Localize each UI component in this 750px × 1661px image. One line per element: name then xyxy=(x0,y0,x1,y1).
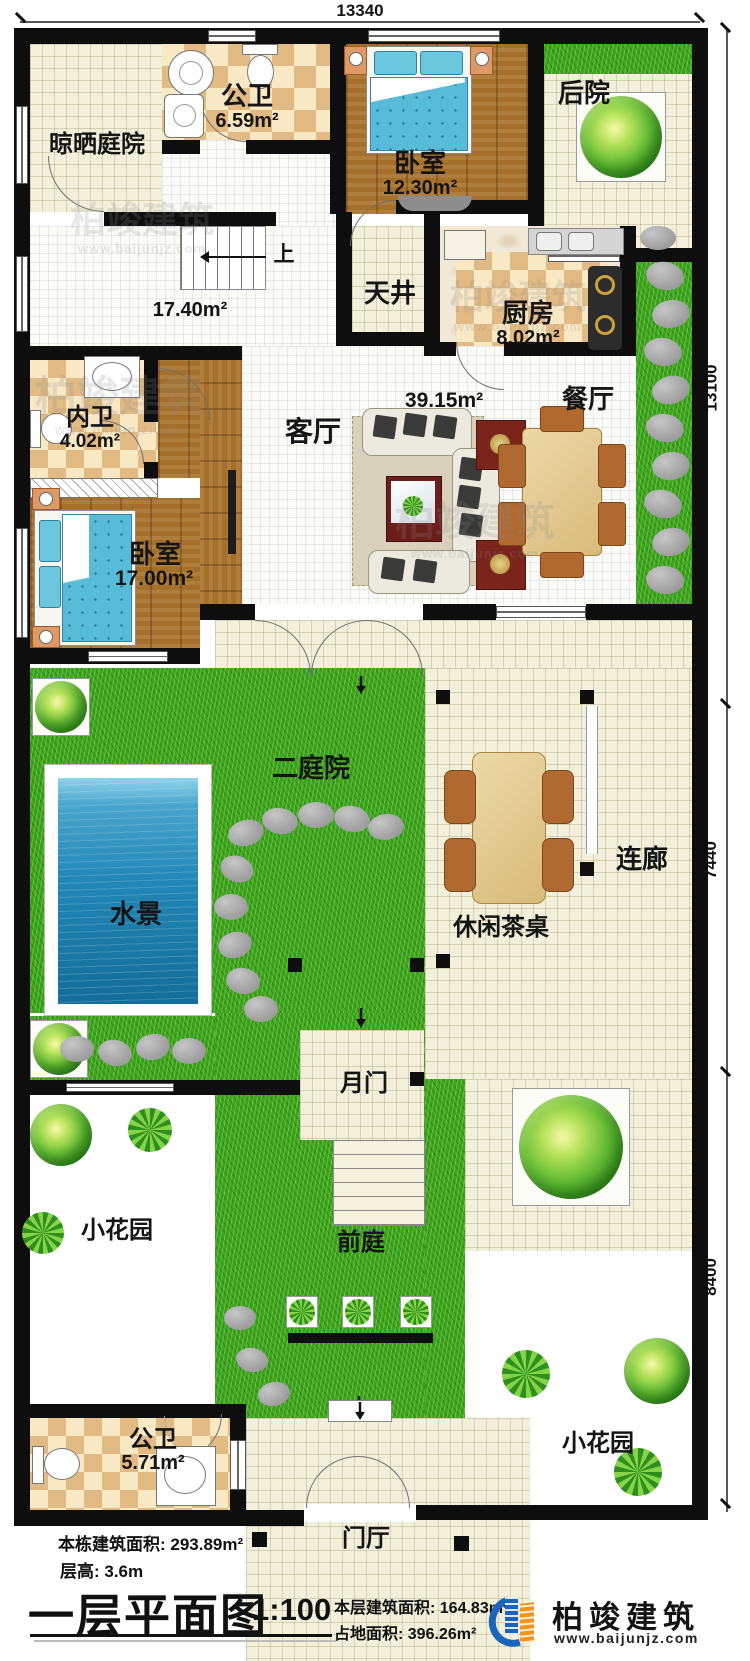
sofa-cushion xyxy=(433,415,458,440)
pillow xyxy=(374,51,417,75)
wall-stair-top xyxy=(104,212,276,226)
pillow xyxy=(420,51,463,75)
wall-left xyxy=(14,28,30,1526)
stone xyxy=(224,1306,256,1330)
tree-icon xyxy=(580,96,662,178)
room-label-neiwei: 内卫 xyxy=(66,406,114,430)
dining-chair xyxy=(498,502,526,546)
column xyxy=(436,690,450,704)
tea-table xyxy=(472,752,546,904)
room-area-gongwei-bottom: 5.71m² xyxy=(121,1453,184,1473)
wall-bath-top-a xyxy=(162,140,200,154)
wall-top xyxy=(14,28,708,44)
land-area-text: 占地面积: 396.26m² xyxy=(334,1620,476,1644)
wall-ensuite-right-a xyxy=(144,360,158,422)
sink-basin-icon xyxy=(179,61,203,85)
corridor-beam-line xyxy=(586,706,598,854)
room-label-lianlang: 连廊 xyxy=(616,846,668,872)
toilet-tank-icon xyxy=(32,1446,44,1484)
room-label-yuemen: 月门 xyxy=(340,1072,388,1096)
room-label-huayuan-right: 小花园 xyxy=(562,1432,634,1456)
washer-drum-icon xyxy=(173,104,196,127)
column xyxy=(288,958,302,972)
burner-icon xyxy=(595,275,615,295)
staircase xyxy=(180,226,266,290)
kitchen-counter xyxy=(444,230,486,260)
wall-tianjing-bottom xyxy=(336,332,440,346)
wall-tianjing-left xyxy=(336,212,352,342)
dimension-line-right xyxy=(726,30,728,1512)
wall-bottom-right xyxy=(415,1505,708,1520)
stair-arrow-line xyxy=(208,256,266,258)
room-label-shuijing: 水景 xyxy=(110,901,162,927)
dimension-line-top xyxy=(20,21,700,23)
plan-scale: 1:100 xyxy=(252,1592,331,1628)
burner-icon xyxy=(595,315,615,335)
column xyxy=(410,958,424,972)
front-courtyard-east xyxy=(425,1079,465,1420)
floor-height-text: 层高: 3.6m xyxy=(60,1557,143,1582)
room-label-liangshai: 晾晒庭院 xyxy=(49,133,145,157)
wall-bathroom-bottom-right-b xyxy=(230,1490,246,1510)
front-path-steps xyxy=(333,1140,425,1226)
pillow xyxy=(39,566,61,608)
window xyxy=(496,606,586,618)
wall-living-south-c xyxy=(586,604,692,620)
company-logo-icon xyxy=(487,1589,545,1653)
tv-icon xyxy=(228,470,236,554)
room-label-menting: 门厅 xyxy=(342,1527,390,1551)
room-label-canting: 餐厅 xyxy=(562,386,614,412)
wall-ensuite-right-b xyxy=(144,462,158,478)
tree-icon xyxy=(624,1338,690,1404)
room-area-woshi-top: 12.30m² xyxy=(383,178,458,198)
toilet-bowl-icon xyxy=(44,1448,80,1480)
shrub-icon xyxy=(128,1108,172,1152)
bed-sheet xyxy=(371,78,465,104)
room-label-chufang: 厨房 xyxy=(502,300,554,326)
column xyxy=(252,1532,267,1547)
wall-tvwall-top xyxy=(200,346,242,360)
stone xyxy=(298,802,334,828)
toilet-tank-icon xyxy=(30,410,41,448)
column xyxy=(580,690,594,704)
lamp-icon xyxy=(39,492,53,506)
wall-kitchen-stub xyxy=(440,342,456,356)
column xyxy=(580,862,594,876)
dining-table xyxy=(522,428,602,556)
tree-icon xyxy=(35,681,87,733)
logo-building-blue xyxy=(505,1597,518,1635)
bed-sheet xyxy=(63,515,89,639)
window xyxy=(16,106,28,184)
room-area-neiwei: 4.02m² xyxy=(60,432,120,451)
room-label-houyuan: 后院 xyxy=(558,80,610,106)
room-label-keting: 客厅 xyxy=(285,418,341,446)
window xyxy=(66,1083,174,1092)
sofa-cushion xyxy=(381,557,406,582)
wall-bath-top-b xyxy=(246,140,330,154)
lamp-icon xyxy=(475,52,489,66)
room-label-chazhuo: 休闲茶桌 xyxy=(453,916,549,940)
hedge-wall xyxy=(288,1333,433,1343)
room-label-woshi-left: 卧室 xyxy=(129,541,181,567)
pillow xyxy=(39,520,61,562)
tree-icon xyxy=(519,1095,623,1199)
wall-living-south-b xyxy=(423,604,496,620)
shrub-icon xyxy=(289,1299,315,1325)
window xyxy=(16,528,28,638)
room-area-keting: 39.15m² xyxy=(405,390,483,411)
toilet-tank-icon xyxy=(242,44,278,55)
window xyxy=(208,30,256,42)
sink-icon xyxy=(92,362,132,391)
column xyxy=(454,1536,469,1551)
sofa-cushion xyxy=(457,485,482,510)
shrub-icon xyxy=(502,1350,550,1398)
logo-building-orange xyxy=(520,1602,534,1643)
kitchen-sink-basin xyxy=(536,232,562,251)
stairs-up-label: 上 xyxy=(274,244,295,265)
title-underline xyxy=(30,1634,332,1637)
door-band-bathroom-bottom xyxy=(230,1440,246,1490)
column xyxy=(436,954,450,968)
sofa-cushion xyxy=(373,415,398,440)
room-label-huayuan-left: 小花园 xyxy=(81,1219,153,1243)
column xyxy=(410,1072,424,1086)
wall-bottom-left xyxy=(14,1510,304,1526)
wall-right xyxy=(692,28,708,1520)
room-label-ertingyuan: 二庭院 xyxy=(272,755,350,781)
title-underline-shadow xyxy=(34,1640,336,1642)
dining-chair xyxy=(598,502,626,546)
tea-chair xyxy=(542,770,574,824)
dimension-label-top: 13340 xyxy=(336,2,383,19)
wall-backyard-south xyxy=(622,248,692,262)
stone xyxy=(172,1038,206,1064)
room-label-qianting: 前庭 xyxy=(337,1231,385,1255)
tea-chair xyxy=(444,838,476,892)
lamp-icon xyxy=(349,52,363,66)
sofa-cushion xyxy=(403,413,428,438)
stone xyxy=(60,1036,94,1062)
dining-chair xyxy=(498,444,526,488)
room-label-woshi-top: 卧室 xyxy=(394,150,446,176)
room-area-stairhall: 17.40m² xyxy=(153,300,228,320)
water-feature xyxy=(58,778,198,1004)
walkway-lower xyxy=(425,1013,692,1079)
lamp-icon xyxy=(39,630,53,644)
room-label-gongwei-bottom: 公卫 xyxy=(129,1428,177,1452)
room-area-gongwei-top: 6.59m² xyxy=(215,111,278,131)
stone xyxy=(640,226,676,250)
window xyxy=(368,30,500,42)
backyard-grass-strip xyxy=(544,44,692,74)
sofa-cushion xyxy=(413,559,438,584)
tea-chair xyxy=(444,770,476,824)
room-area-chufang: 8.02m² xyxy=(496,328,559,348)
dining-chair xyxy=(598,444,626,488)
wall-bedroom-backyard xyxy=(528,44,544,226)
sofa-cushion xyxy=(459,513,484,538)
floor-plan: 13340 13100 7440 8400 xyxy=(0,0,750,1661)
window xyxy=(16,256,28,332)
shrub-icon xyxy=(403,1299,429,1325)
window-sliding xyxy=(88,651,168,662)
dining-chair xyxy=(540,552,584,578)
tea-chair xyxy=(542,838,574,892)
room-area-woshi-left: 17.00m² xyxy=(115,568,193,589)
building-area-text: 本栋建筑面积: 293.89m² xyxy=(58,1530,243,1555)
shrub-icon xyxy=(22,1212,64,1254)
floor-area-text: 本层建筑面积: 164.83m² xyxy=(334,1594,508,1618)
room-label-tianjing: 天井 xyxy=(364,280,416,306)
plant-icon xyxy=(403,496,423,516)
wall-bathroom-bottom-right-a xyxy=(230,1404,246,1440)
wall-living-south-a xyxy=(200,604,255,620)
tree-icon xyxy=(30,1104,92,1166)
company-website: www.baijunjz.com xyxy=(554,1630,699,1646)
kitchen-sink-basin xyxy=(568,232,594,251)
room-label-gongwei-top: 公卫 xyxy=(221,83,273,109)
shrub-icon xyxy=(345,1299,371,1325)
side-table-medallion xyxy=(490,554,510,574)
stone xyxy=(214,894,248,920)
stone xyxy=(244,996,278,1022)
